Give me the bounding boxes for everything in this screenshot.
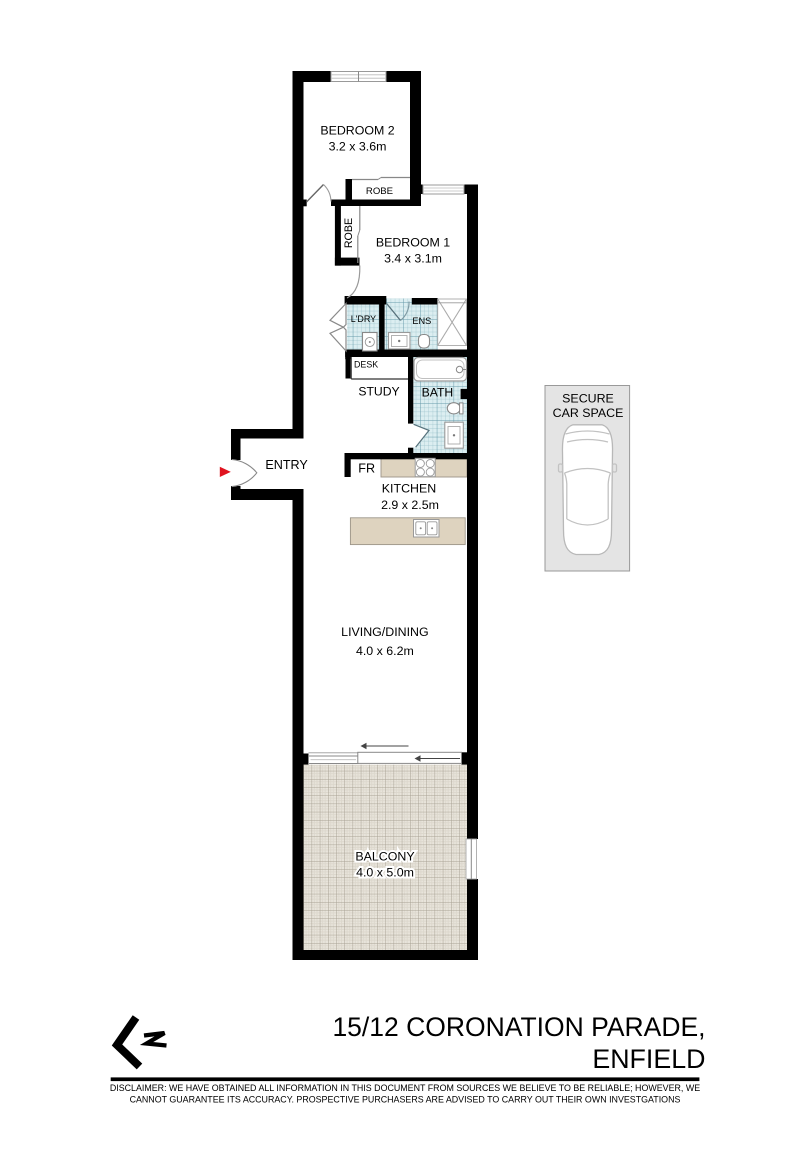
svg-text:15/12 CORONATION PARADE,: 15/12 CORONATION PARADE, — [332, 1012, 705, 1042]
svg-text:ROBE: ROBE — [366, 186, 393, 197]
svg-text:CAR SPACE: CAR SPACE — [553, 406, 624, 420]
svg-text:SECURE: SECURE — [562, 391, 614, 405]
svg-text:BALCONY: BALCONY — [355, 850, 414, 864]
svg-text:DISCLAIMER: WE HAVE OBTAINED A: DISCLAIMER: WE HAVE OBTAINED ALL INFORMA… — [110, 1083, 700, 1093]
svg-text:ENTRY: ENTRY — [265, 458, 308, 472]
svg-text:2.9 x 2.5m: 2.9 x 2.5m — [381, 498, 439, 512]
svg-text:4.0 x 6.2m: 4.0 x 6.2m — [356, 644, 414, 658]
svg-text:BEDROOM 1: BEDROOM 1 — [376, 236, 450, 250]
svg-text:4.0 x 5.0m: 4.0 x 5.0m — [356, 866, 414, 880]
svg-text:ENS: ENS — [412, 316, 431, 326]
svg-text:STUDY: STUDY — [358, 384, 399, 398]
svg-text:L'DRY: L'DRY — [351, 314, 376, 324]
svg-text:ENFIELD: ENFIELD — [592, 1044, 705, 1074]
svg-text:BEDROOM 2: BEDROOM 2 — [320, 123, 394, 137]
svg-text:FR: FR — [358, 461, 375, 475]
svg-text:LIVING/DINING: LIVING/DINING — [341, 625, 428, 639]
svg-text:CANNOT GUARANTEE ITS ACCURACY.: CANNOT GUARANTEE ITS ACCURACY. PROSPECTI… — [130, 1095, 681, 1105]
svg-text:ROBE: ROBE — [343, 218, 355, 248]
svg-text:BATH: BATH — [422, 385, 454, 399]
svg-text:3.4 x 3.1m: 3.4 x 3.1m — [384, 252, 442, 266]
svg-text:KITCHEN: KITCHEN — [382, 482, 436, 496]
svg-text:3.2 x 3.6m: 3.2 x 3.6m — [329, 139, 387, 153]
svg-text:DESK: DESK — [354, 360, 378, 370]
